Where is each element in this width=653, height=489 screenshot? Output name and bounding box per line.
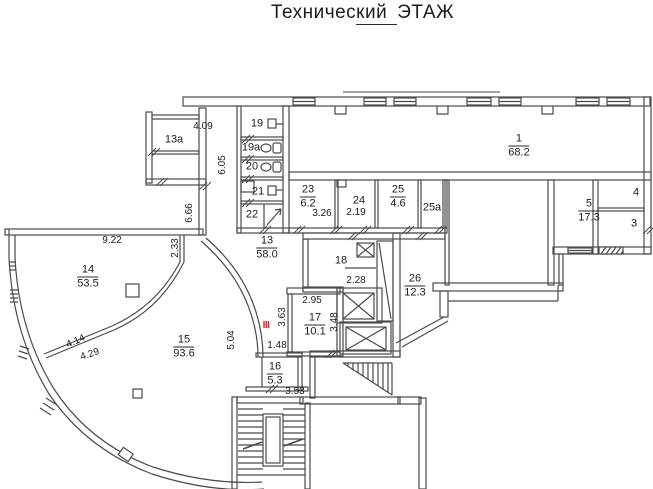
- toilet-icon: [261, 163, 271, 171]
- toilet-icon: [261, 144, 271, 152]
- door-leaf-icon: [268, 119, 276, 128]
- floor-plan-drawing: [0, 0, 653, 489]
- curved-west-wall: [5, 229, 264, 489]
- elevator-shafts: [303, 233, 445, 357]
- interior-walls-16-17: [246, 288, 343, 391]
- exterior-walls: [183, 92, 651, 489]
- window-marks: [293, 98, 630, 254]
- floor-plan-page: ТехническийЭТАЖ: [0, 0, 653, 489]
- staircase-right: [300, 357, 400, 404]
- interior-walls-center: [289, 172, 651, 285]
- staircase-bottom: [232, 397, 310, 489]
- door-leaf-icon: [268, 186, 276, 195]
